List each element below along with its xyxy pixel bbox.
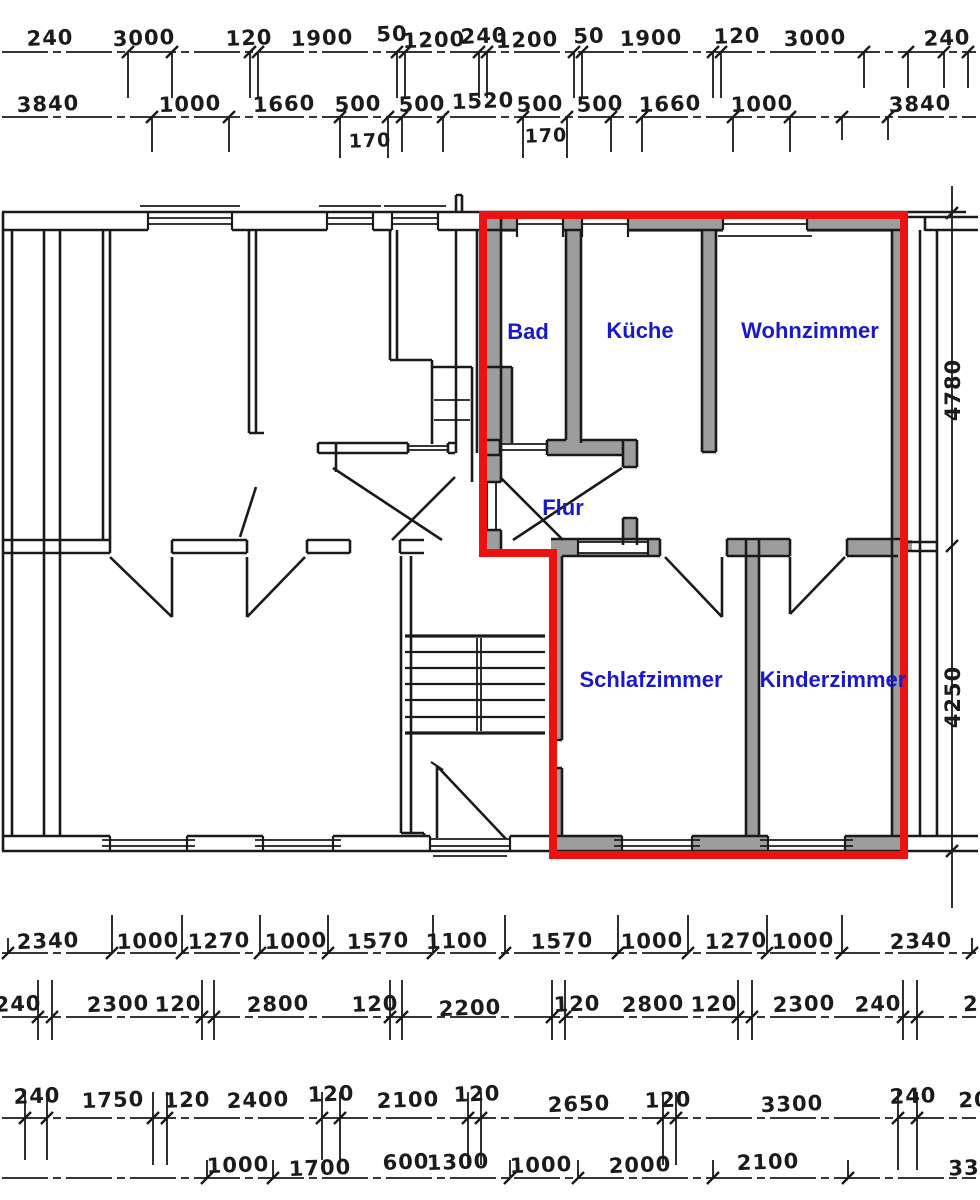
dim-label: 240	[923, 25, 971, 51]
dim-label: 3840	[16, 91, 79, 117]
room-label-wohnzimmer: Wohnzimmer	[741, 318, 879, 344]
dim-label: 600	[382, 1149, 430, 1175]
dim-label: 2	[963, 992, 979, 1017]
dim-label: 1900	[290, 25, 353, 51]
dim-label: 120	[690, 991, 738, 1017]
dim-label: 2800	[246, 991, 309, 1017]
dim-label: 1700	[288, 1155, 351, 1181]
dim-label: 3000	[783, 25, 846, 51]
dim-label: 2300	[86, 991, 149, 1017]
dim-label: 120	[453, 1081, 501, 1107]
dim-label: 3300	[760, 1091, 823, 1117]
dim-label: 500	[334, 91, 382, 117]
dim-label: 33	[948, 1155, 980, 1180]
room-label-schlafzimmer: Schlafzimmer	[579, 667, 722, 693]
dim-label: 1750	[81, 1087, 144, 1113]
dim-label: 170	[524, 124, 567, 147]
dim-label: 120	[154, 991, 202, 1017]
dim-label-vertical: 4250	[941, 666, 965, 728]
dim-label: 20	[958, 1087, 980, 1112]
dim-label: 120	[307, 1081, 355, 1107]
dim-label: 1000	[771, 928, 834, 954]
dim-label: 2340	[889, 928, 952, 954]
dim-label: 120	[644, 1087, 692, 1113]
dim-label: 120	[351, 991, 399, 1017]
dim-label: 500	[398, 91, 446, 117]
dim-label: 2300	[772, 991, 835, 1017]
dim-label: 2340	[16, 928, 79, 954]
gray-wall-fills	[483, 215, 912, 851]
dim-label: 1200	[402, 27, 465, 53]
dim-label: 1000	[509, 1152, 572, 1178]
dim-label: 120	[553, 991, 601, 1017]
dim-label: 240	[854, 991, 902, 1017]
room-label-flur: Flur	[542, 495, 584, 521]
dim-label: 1570	[346, 928, 409, 954]
dim-label: 1000	[206, 1152, 269, 1178]
dim-label: 500	[516, 91, 564, 117]
dim-label: 50	[573, 23, 605, 48]
dim-label: 3000	[112, 25, 175, 51]
dim-label: 2000	[608, 1152, 671, 1178]
dim-label: 2200	[438, 995, 501, 1021]
staircase	[405, 636, 545, 733]
dim-label: 240	[13, 1083, 61, 1109]
dim-label: 1900	[619, 25, 682, 51]
dim-label: 1300	[426, 1149, 489, 1175]
room-label-kueche: Küche	[606, 318, 673, 344]
dim-label: 1520	[451, 88, 514, 114]
floor-plan-drawing	[0, 0, 980, 1200]
dim-label: 240	[889, 1083, 937, 1109]
dim-label: 500	[576, 91, 624, 117]
dim-label: 1200	[495, 27, 558, 53]
dim-label: 170	[348, 129, 391, 152]
dim-label: 2800	[621, 991, 684, 1017]
dim-label: 3840	[888, 91, 951, 117]
dim-label: 2100	[736, 1149, 799, 1175]
dim-label: 1100	[425, 928, 488, 954]
dim-label-vertical: 4780	[941, 359, 965, 421]
room-label-bad: Bad	[507, 319, 549, 345]
dim-label: 1000	[116, 928, 179, 954]
dim-label: 1660	[638, 91, 701, 117]
dim-label: 1000	[620, 928, 683, 954]
dim-label: 2100	[376, 1087, 439, 1113]
dim-label: 2650	[547, 1091, 610, 1117]
room-label-kinderzimmer: Kinderzimmer	[760, 667, 907, 693]
dim-label: 120	[713, 23, 761, 49]
dim-label: 1000	[158, 91, 221, 117]
dim-label: 1000	[730, 91, 793, 117]
dim-label: 1270	[704, 928, 767, 954]
red-apartment-outline	[483, 215, 904, 855]
dim-label: 240	[0, 991, 42, 1017]
dim-label: 1270	[187, 928, 250, 954]
dim-label: 1570	[530, 928, 593, 954]
dim-label: 120	[225, 25, 273, 51]
dim-label: 2400	[226, 1087, 289, 1113]
dim-label: 1000	[264, 928, 327, 954]
dim-label: 240	[26, 25, 74, 51]
dim-label: 120	[163, 1087, 211, 1113]
floor-plan-page: Bad Küche Wohnzimmer Flur Schlafzimmer K…	[0, 0, 980, 1200]
dim-label: 1660	[252, 91, 315, 117]
